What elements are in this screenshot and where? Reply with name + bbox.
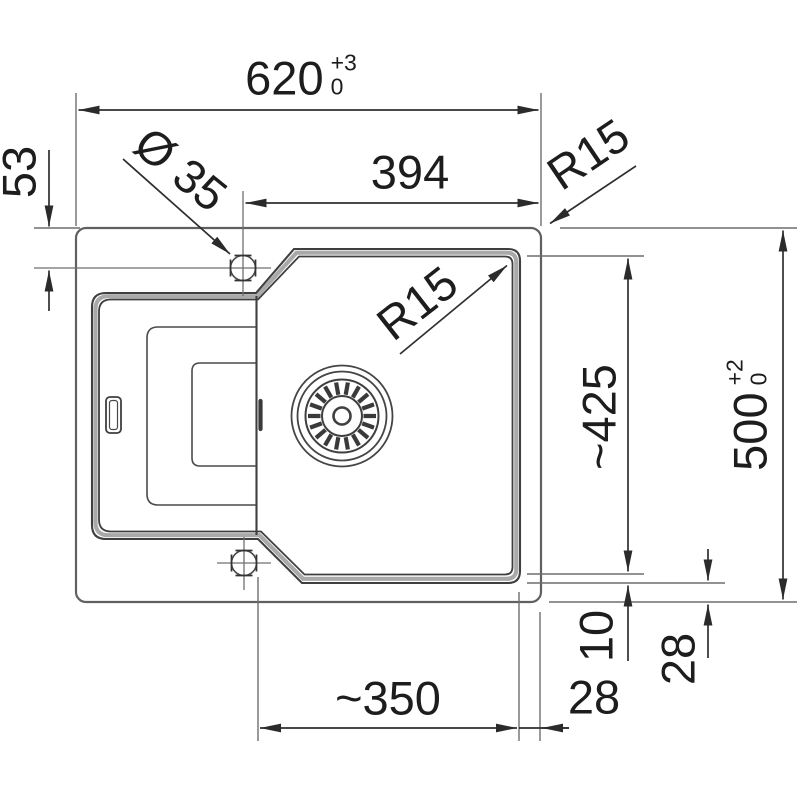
- tolerance-zero: 0: [331, 75, 344, 98]
- drainboard-slot-inner: [110, 401, 118, 430]
- technical-drawing-canvas: 620 +3 0 394 53 Ø 35 R15 R15 ~425 500 +2…: [0, 0, 800, 800]
- dim-394-label: 394: [371, 149, 449, 196]
- dim-425-label: ~425: [576, 364, 623, 470]
- strainer-hub: [322, 396, 362, 436]
- dim-28-right-label: 28: [655, 633, 702, 685]
- dim-350-label: ~350: [335, 675, 441, 722]
- dim-28-bottom-label: 28: [568, 674, 620, 721]
- dim-width-total-label: 620 +3 0: [245, 55, 357, 102]
- dim-width-total-value: 620: [245, 55, 323, 102]
- dim-width-total-tolerance: +3 0: [331, 52, 357, 99]
- dim-53-label: 53: [0, 146, 43, 198]
- dim-depth-total-value: 500: [727, 392, 774, 470]
- drain-strainer: [292, 366, 393, 467]
- dim-depth-total-tolerance: +2 0: [724, 359, 771, 385]
- tolerance-plus: +3: [331, 52, 357, 75]
- dim-10-label: 10: [573, 610, 620, 662]
- drainboard-step-middle: [147, 327, 256, 505]
- drainboard-step-inner: [192, 363, 256, 466]
- tap-hole-marker-top: [34, 191, 271, 296]
- tolerance-plus: +2: [724, 359, 747, 385]
- drainboard-slot-outer: [106, 397, 121, 433]
- tolerance-zero: 0: [747, 373, 770, 386]
- dim-depth-total-label: 500 +2 0: [727, 359, 774, 471]
